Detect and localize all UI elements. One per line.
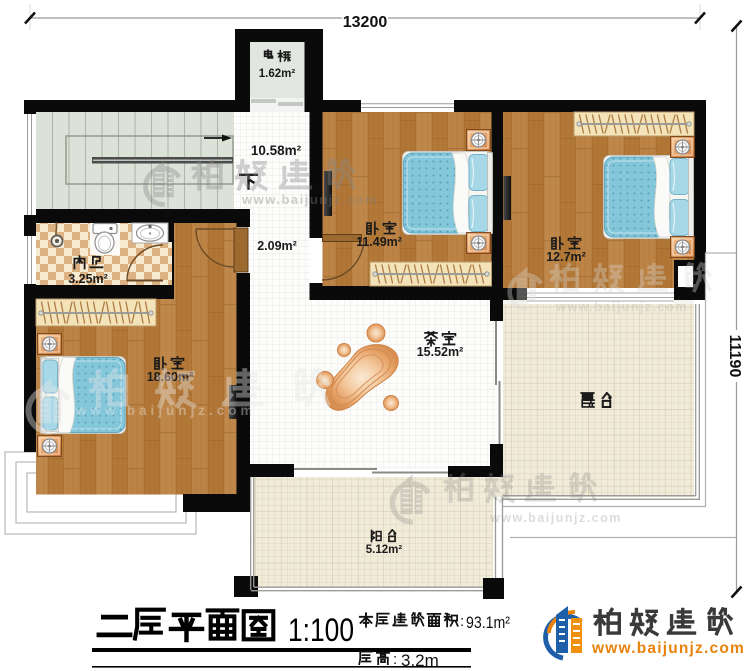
svg-text::: : (393, 651, 397, 668)
svg-text:1.62m²: 1.62m² (259, 68, 296, 80)
svg-text::: : (460, 613, 464, 630)
svg-text:www.baijunjz.com: www.baijunjz.com (591, 640, 745, 657)
svg-text:11190: 11190 (726, 335, 743, 378)
svg-text:www.baijunjz.com: www.baijunjz.com (555, 300, 688, 314)
svg-text:1:100: 1:100 (288, 612, 354, 648)
svg-text:www.baijunjz.com: www.baijunjz.com (75, 403, 257, 418)
svg-text:3.25m²: 3.25m² (68, 272, 108, 286)
svg-text:www.baijunjz.com: www.baijunjz.com (241, 192, 378, 207)
svg-text:13200: 13200 (343, 14, 388, 31)
svg-text:10.58m²: 10.58m² (251, 143, 302, 158)
svg-text:93.1m²: 93.1m² (466, 613, 510, 632)
svg-text:15.52m²: 15.52m² (417, 345, 464, 359)
svg-text:www.baijunjz.com: www.baijunjz.com (489, 511, 622, 525)
svg-text:11.49m²: 11.49m² (356, 235, 402, 249)
svg-text:5.12m²: 5.12m² (366, 544, 403, 556)
svg-text:3.2m: 3.2m (401, 651, 439, 670)
svg-text:12.7m²: 12.7m² (546, 250, 586, 264)
svg-text:2.09m²: 2.09m² (257, 239, 297, 253)
